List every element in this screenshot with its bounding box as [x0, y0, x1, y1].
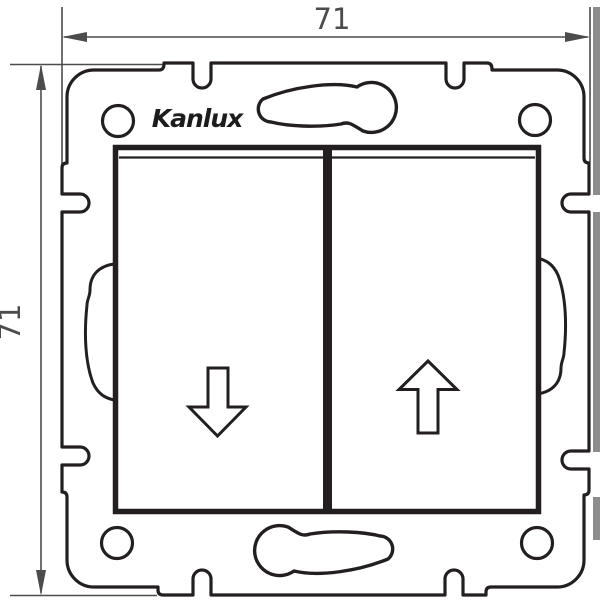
dimension-drawing-canvas: 71 71 Kanlux	[0, 0, 600, 600]
dimension-width-arrow-left	[62, 32, 87, 42]
dimension-height-arrow-top	[36, 65, 46, 91]
right-edge-artifact-segment	[593, 212, 600, 452]
screw-hole-top-right	[520, 105, 551, 136]
screw-hole-bottom-left	[102, 528, 133, 559]
screw-hole-top-left	[103, 106, 134, 137]
right-edge-artifact	[593, 7, 600, 540]
screw-hole-bottom-right	[522, 528, 553, 559]
dimension-height-label: 71	[0, 304, 27, 341]
shutter-switch-dimension-drawing: 71 71 Kanlux	[0, 0, 600, 600]
brand-logo: Kanlux	[152, 104, 244, 133]
dimension-width-label: 71	[314, 2, 351, 36]
right-edge-artifact-segment	[593, 497, 600, 540]
dimension-width-arrow-right	[565, 32, 590, 42]
right-edge-artifact-segment	[593, 7, 600, 195]
dimension-height-arrow-bottom	[36, 570, 46, 596]
